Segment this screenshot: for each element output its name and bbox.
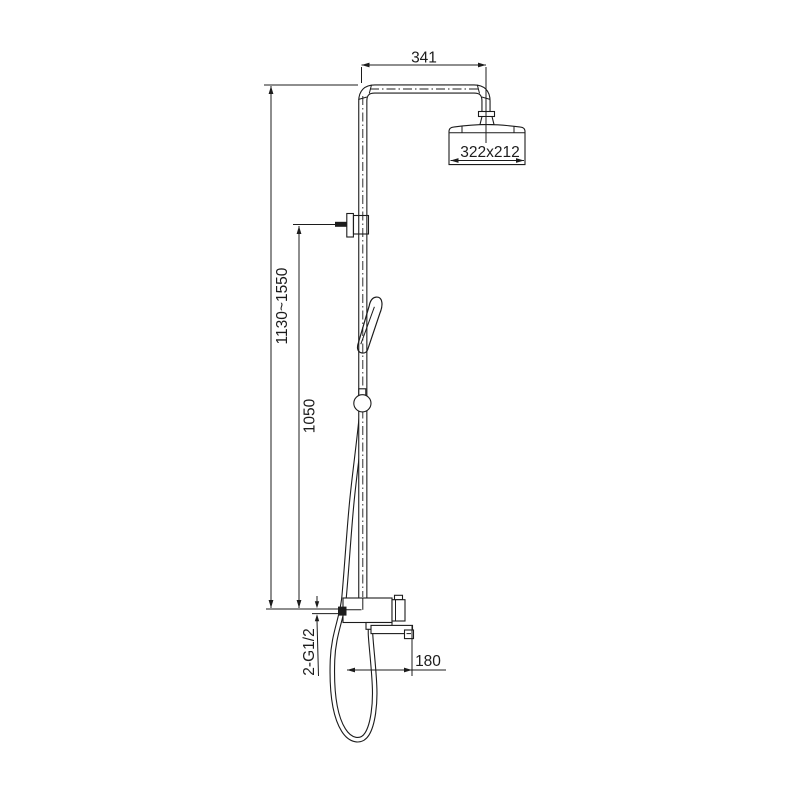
dim-label-slider: 1050 [302,398,319,433]
dim-label-head: 322x212 [460,144,519,161]
knob-stem [335,222,347,227]
arrow-top [269,86,274,94]
dim-label-height-range: 1130~1550 [274,267,291,344]
dim-slider-1050: 1050 [293,225,336,609]
shower-column-diagram: 341 322x212 1130~1550 1050 2-G1/2 1 [0,0,800,800]
shower-hose [332,411,374,740]
dim-label-reach: 180 [415,653,441,670]
arrow-left [362,63,370,68]
arrow-right [404,668,412,673]
mixer-handle-tab [395,595,403,599]
arrow-down [315,601,319,608]
arrow-top [297,226,302,234]
dim-height-range: 1130~1550 [264,85,358,608]
arrow-left [347,668,355,673]
mixer-handle [392,600,405,621]
inlet-block [338,607,347,616]
dim-head-322x212: 322x212 [451,144,525,163]
holder-knob [354,395,371,412]
arrow-bottom [269,600,274,608]
knob-handle [347,214,354,238]
callout-inlet: 2-G1/2 [301,596,319,676]
connector-neck [480,117,494,125]
centerlines [363,89,478,597]
arrow-bottom [297,600,302,608]
arrow-right [478,63,486,68]
mixer-valve [343,595,414,638]
technical-drawing: 341 322x212 1130~1550 1050 2-G1/2 1 [0,0,800,800]
dim-label-inlet: 2-G1/2 [301,628,318,675]
dim-label-arm: 341 [411,50,437,67]
arrow-up [315,614,319,621]
water-inlet [266,607,347,616]
slider-holder [354,389,371,412]
